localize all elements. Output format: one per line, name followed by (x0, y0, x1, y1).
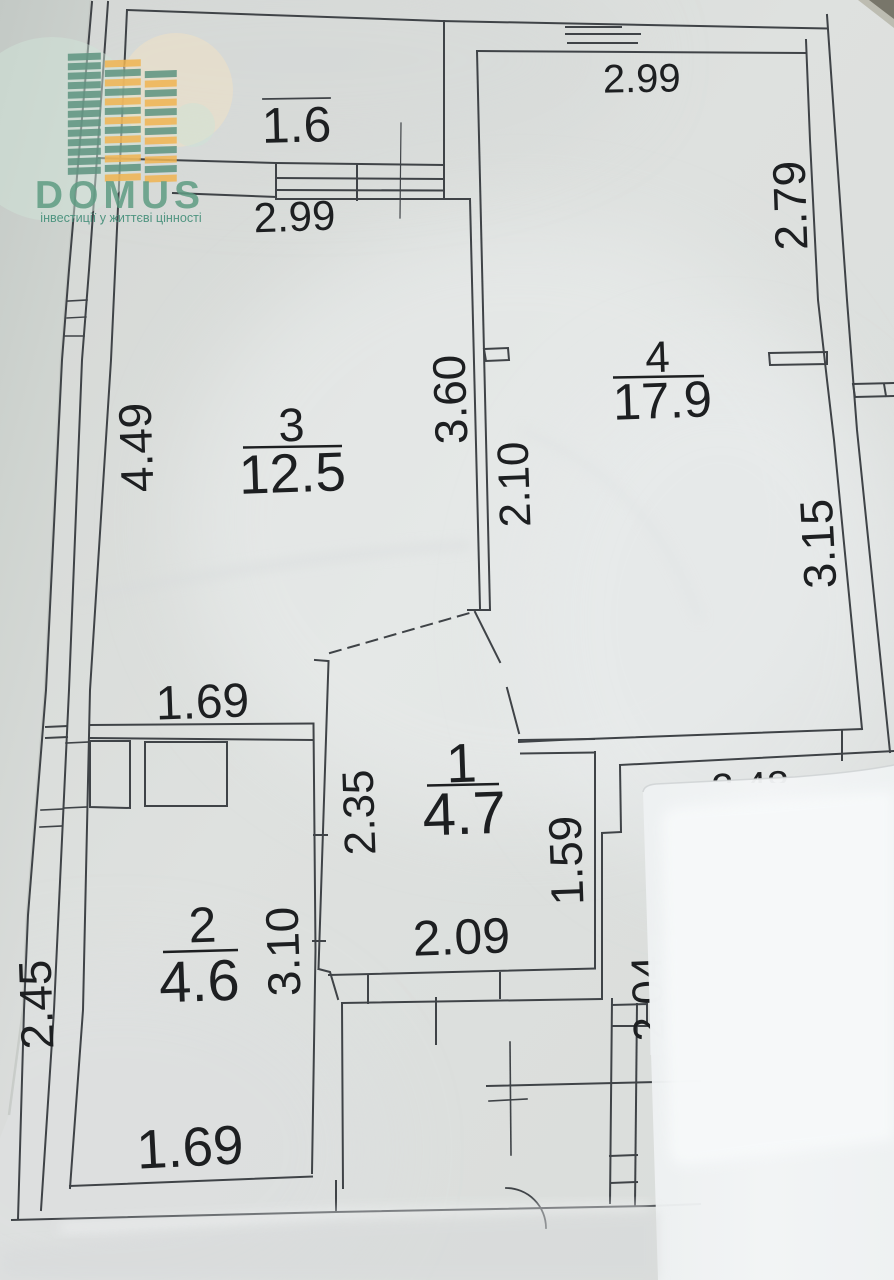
svg-text:1.69: 1.69 (155, 674, 250, 730)
svg-text:12.5: 12.5 (238, 440, 347, 506)
svg-text:3.60: 3.60 (422, 354, 477, 445)
svg-text:4.49: 4.49 (108, 402, 163, 493)
svg-text:2.10: 2.10 (489, 441, 541, 528)
svg-text:2.45: 2.45 (8, 959, 63, 1050)
svg-text:2.99: 2.99 (253, 192, 336, 242)
svg-text:3.10: 3.10 (255, 906, 310, 997)
svg-text:17.9: 17.9 (612, 370, 713, 430)
svg-text:1.59: 1.59 (538, 815, 593, 906)
svg-text:3.15: 3.15 (790, 498, 847, 590)
svg-text:2.99: 2.99 (602, 56, 681, 101)
svg-text:2.09: 2.09 (412, 907, 511, 966)
svg-text:2.35: 2.35 (334, 769, 386, 856)
svg-text:інвестиції у життєві цінності: інвестиції у життєві цінності (40, 211, 201, 225)
svg-text:1.69: 1.69 (135, 1113, 245, 1181)
svg-text:1.6: 1.6 (261, 96, 332, 154)
svg-text:4.6: 4.6 (158, 948, 241, 1016)
svg-text:2: 2 (188, 897, 218, 954)
svg-text:4.7: 4.7 (421, 779, 507, 849)
svg-text:2.79: 2.79 (762, 160, 817, 251)
